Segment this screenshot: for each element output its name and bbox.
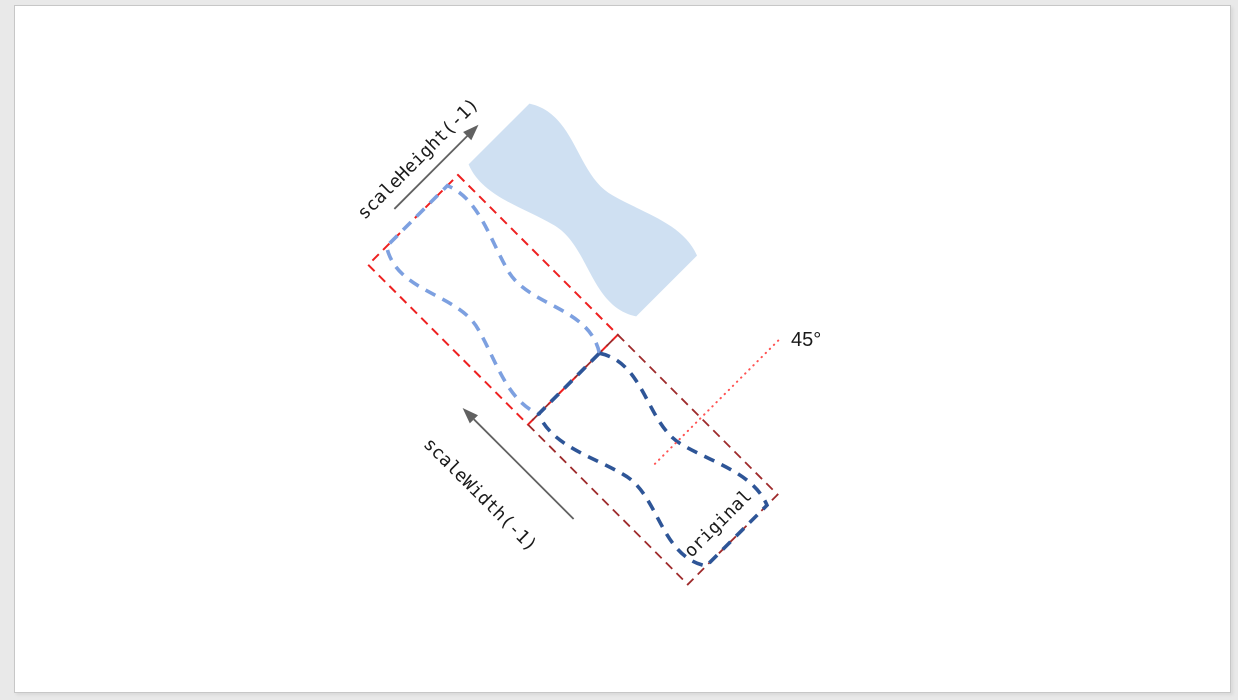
- app-background: { "diagram": { "labels": { "scale_height…: [0, 0, 1238, 700]
- original-flag-group: [536, 342, 770, 576]
- angle-label: 45°: [791, 329, 821, 351]
- result-flag-group: [466, 93, 700, 327]
- original-flag-outline: [536, 342, 770, 576]
- original-label: original: [680, 486, 756, 562]
- document-canvas: scaleHeight(-1) scaleWidth(-1) original …: [14, 5, 1231, 693]
- rotated-frame: scaleHeight(-1) scaleWidth(-1) original: [266, 58, 859, 651]
- original-bounding-box: [528, 335, 778, 585]
- result-flag-shape: [466, 93, 700, 327]
- shape-flip-diagram: scaleHeight(-1) scaleWidth(-1) original …: [15, 6, 1232, 694]
- scale-height-label: scaleHeight(-1): [353, 94, 483, 224]
- angle-dotted-line: [655, 337, 782, 464]
- scale-width-label: scaleWidth(-1): [419, 434, 541, 556]
